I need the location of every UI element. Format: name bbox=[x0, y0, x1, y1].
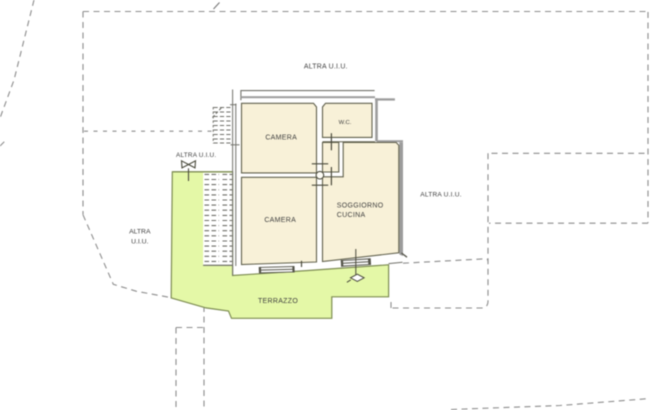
svg-text:ALTRA: ALTRA bbox=[129, 228, 151, 235]
svg-text:SOGGIORNO: SOGGIORNO bbox=[337, 203, 384, 210]
svg-text:TERRAZZO: TERRAZZO bbox=[258, 298, 298, 305]
svg-text:CUCINA: CUCINA bbox=[337, 212, 366, 219]
svg-text:U.I.U.: U.I.U. bbox=[131, 239, 148, 246]
svg-text:CAMERA: CAMERA bbox=[265, 134, 297, 141]
svg-text:ALTRA U.I.U.: ALTRA U.I.U. bbox=[176, 152, 216, 159]
svg-text:ALTRA U.I.U.: ALTRA U.I.U. bbox=[420, 192, 461, 199]
svg-text:W.C.: W.C. bbox=[339, 120, 352, 126]
svg-text:ALTRA U.I.U.: ALTRA U.I.U. bbox=[304, 64, 348, 71]
svg-text:CAMERA: CAMERA bbox=[264, 217, 296, 224]
